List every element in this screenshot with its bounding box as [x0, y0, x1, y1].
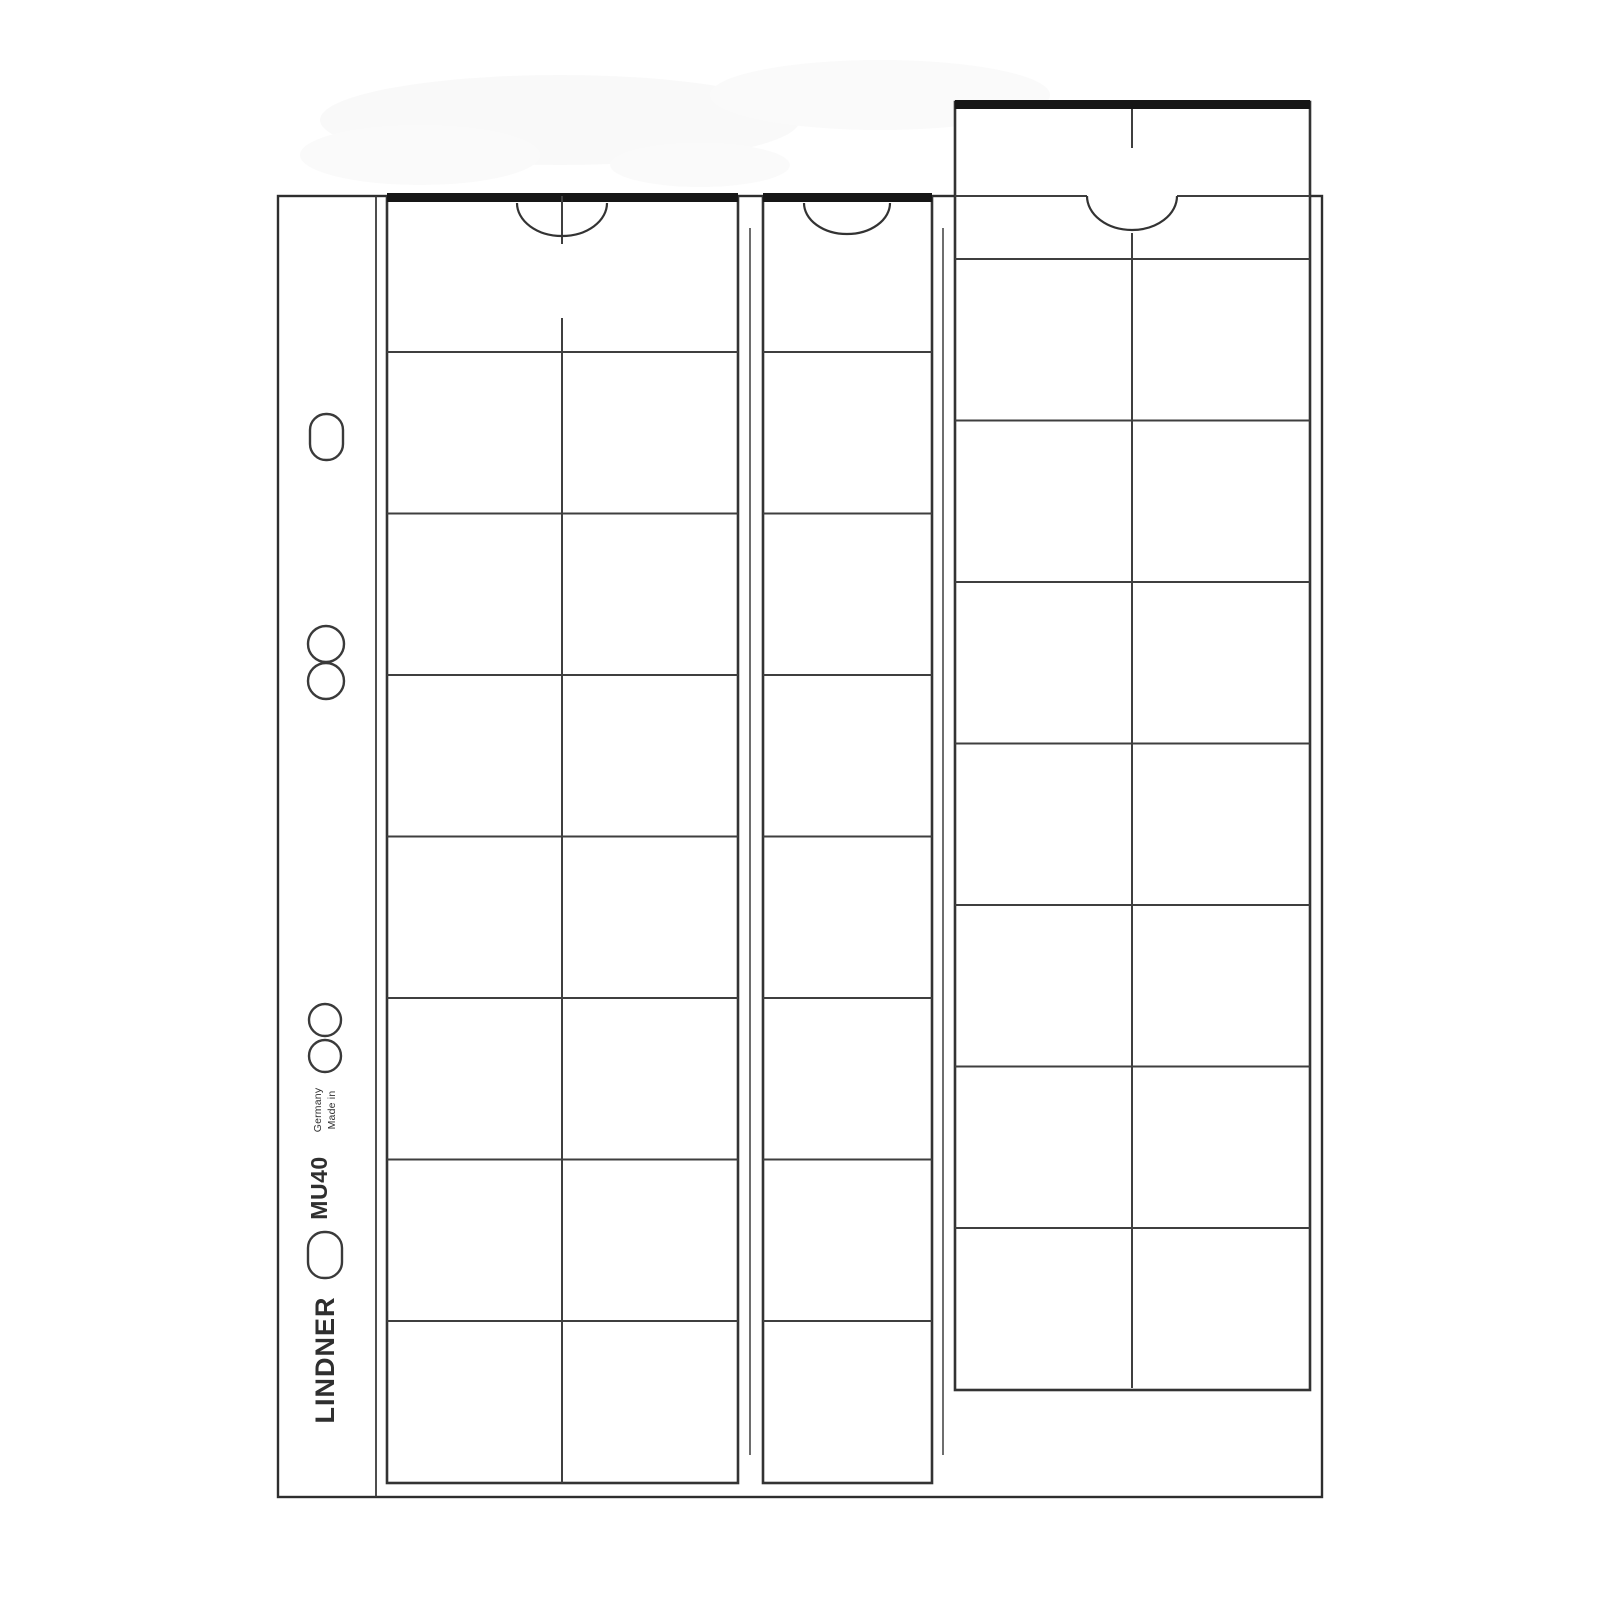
binder-hole-circle: [309, 1004, 341, 1036]
binder-hole-slot-bottom: [308, 1232, 342, 1278]
binder-hole-circle: [308, 626, 344, 662]
strip-loose-top-bar: [955, 100, 1310, 109]
product-image: Made in Germany MU40 LINDNER: [0, 0, 1600, 1600]
binder-hole-circle: [309, 1040, 341, 1072]
strip-middle-top-bar: [763, 193, 932, 202]
strip-loose: [955, 100, 1310, 1390]
background-artifacts: [300, 60, 1050, 187]
model-label: MU40: [306, 1156, 332, 1219]
brand-label: LINDNER: [310, 1297, 340, 1424]
origin-label-line1: Made in: [326, 1091, 338, 1130]
strip-middle-outline: [763, 197, 932, 1483]
binder-hole-circle: [308, 663, 344, 699]
binder-hole-slot-top: [310, 414, 343, 460]
strip-left: [387, 193, 738, 1483]
coin-sheet-drawing: Made in Germany MU40 LINDNER: [0, 0, 1600, 1600]
artifact-smudge: [300, 125, 540, 185]
origin-label-line2: Germany: [312, 1087, 324, 1132]
artifact-smudge: [610, 143, 790, 187]
strip-middle: [763, 193, 932, 1483]
